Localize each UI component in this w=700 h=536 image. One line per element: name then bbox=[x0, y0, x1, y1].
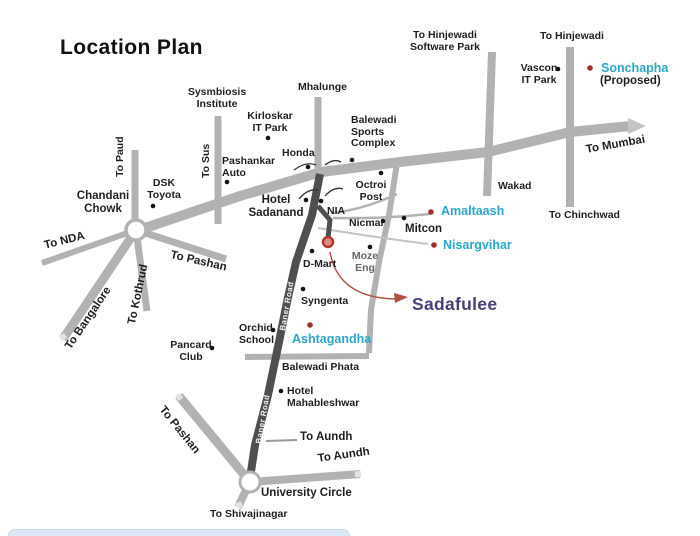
nia-dot bbox=[319, 199, 324, 204]
octroi-dot bbox=[379, 171, 384, 176]
hotel-sadanand-dot bbox=[304, 198, 309, 203]
university-circle-junction bbox=[240, 472, 260, 492]
label-university-circle: University Circle bbox=[261, 487, 352, 500]
label-pashankar-auto: Pashankar Auto bbox=[222, 156, 275, 179]
sonchapha-dot bbox=[587, 65, 593, 71]
bottom-ui-bar bbox=[8, 529, 350, 536]
label-kirloskar-it-park: Kirloskar IT Park bbox=[245, 111, 295, 134]
label-nia: NIA bbox=[327, 206, 345, 218]
label-sonchapha-proposed: (Proposed) bbox=[600, 75, 661, 88]
label-honda: Honda bbox=[282, 148, 315, 160]
label-syngenta: Syngenta bbox=[301, 296, 348, 308]
nisargvihar-dot bbox=[431, 242, 437, 248]
mitcon-dot bbox=[402, 216, 407, 221]
amaltaash-dot bbox=[428, 209, 434, 215]
label-to-shivajinagar: To Shivajinagar bbox=[210, 509, 287, 521]
balewadi-phata-road bbox=[245, 356, 369, 357]
label-wakad: Wakad bbox=[498, 181, 531, 193]
ashtagandha-dot bbox=[307, 322, 313, 328]
syngenta-dot bbox=[301, 287, 306, 292]
sadafulee-arrowhead-icon bbox=[394, 293, 408, 303]
chandani-chowk-circle bbox=[126, 220, 146, 240]
label-pancard-club: Pancard Club bbox=[168, 340, 214, 363]
to-aundh-spur-line bbox=[266, 440, 297, 441]
hinjewadi-software-park-road bbox=[487, 52, 492, 196]
label-sonchapha: Sonchapha bbox=[601, 62, 668, 76]
road-endcap bbox=[355, 471, 361, 477]
dsk-toyota-dot bbox=[151, 204, 156, 209]
label-vascon-it-park: Vascon IT Park bbox=[515, 63, 563, 86]
moze-eng-dot bbox=[368, 245, 373, 250]
label-nicmar: Nicmar bbox=[349, 218, 385, 230]
label-mitcon: Mitcon bbox=[405, 223, 442, 236]
label-to-chinchwad: To Chinchwad bbox=[549, 210, 620, 222]
label-amaltaash: Amaltaash bbox=[441, 205, 504, 219]
location-plan-map: Location Plan Sysmbiosis Institute Kirlo… bbox=[0, 0, 700, 536]
label-d-mart: D-Mart bbox=[303, 259, 336, 271]
label-nisargvihar: Nisargvihar bbox=[443, 239, 512, 253]
d-mart-dot bbox=[310, 249, 315, 254]
label-to-hinjewadi: To Hinjewadi bbox=[536, 31, 608, 43]
label-to-paud: To Paud bbox=[115, 136, 127, 177]
kirloskar-dot bbox=[266, 136, 271, 141]
flyover-mark-icon bbox=[325, 161, 341, 165]
label-to-hinjewadi-software-park: To Hinjewadi Software Park bbox=[407, 30, 483, 53]
flyover-mark-icon bbox=[294, 164, 316, 170]
sadafulee-site-marker bbox=[323, 237, 333, 247]
label-hotel-mahableshwar: Hotel Mahableshwar bbox=[287, 386, 359, 409]
pashankar-auto-dot bbox=[225, 180, 230, 185]
label-orchid-school: Orchid School bbox=[239, 323, 274, 346]
to-aundh-road bbox=[250, 474, 360, 482]
label-to-sus: To Sus bbox=[201, 144, 213, 178]
to-mumbai-arrow-icon bbox=[628, 118, 646, 134]
project-dots bbox=[307, 65, 593, 328]
label-dsk-toyota: DSK Toyota bbox=[140, 178, 188, 201]
label-balewadi-phata: Balewadi Phata bbox=[282, 362, 359, 374]
label-balewadi-sports-complex: Balewadi Sports Complex bbox=[351, 115, 397, 150]
hotel-mahableshwar-dot bbox=[279, 389, 284, 394]
label-sysmbiosis-institute: Sysmbiosis Institute bbox=[187, 87, 247, 110]
honda-dot bbox=[306, 165, 311, 170]
label-ashtagandha: Ashtagandha bbox=[292, 333, 371, 347]
label-moze-eng: Moze Eng bbox=[350, 251, 380, 274]
flyover-mark-icon bbox=[325, 188, 343, 196]
label-mhalunge: Mhalunge bbox=[298, 82, 346, 94]
label-sadafulee: Sadafulee bbox=[412, 295, 497, 314]
page-title: Location Plan bbox=[60, 36, 203, 59]
label-octroi-post: Octroi Post bbox=[352, 180, 390, 203]
label-chandani-chowk: Chandani Chowk bbox=[70, 190, 136, 215]
balewadi-sports-dot bbox=[350, 158, 355, 163]
label-to-aundh-spur: To Aundh bbox=[300, 431, 352, 444]
label-hotel-sadanand: Hotel Sadanand bbox=[248, 194, 304, 219]
